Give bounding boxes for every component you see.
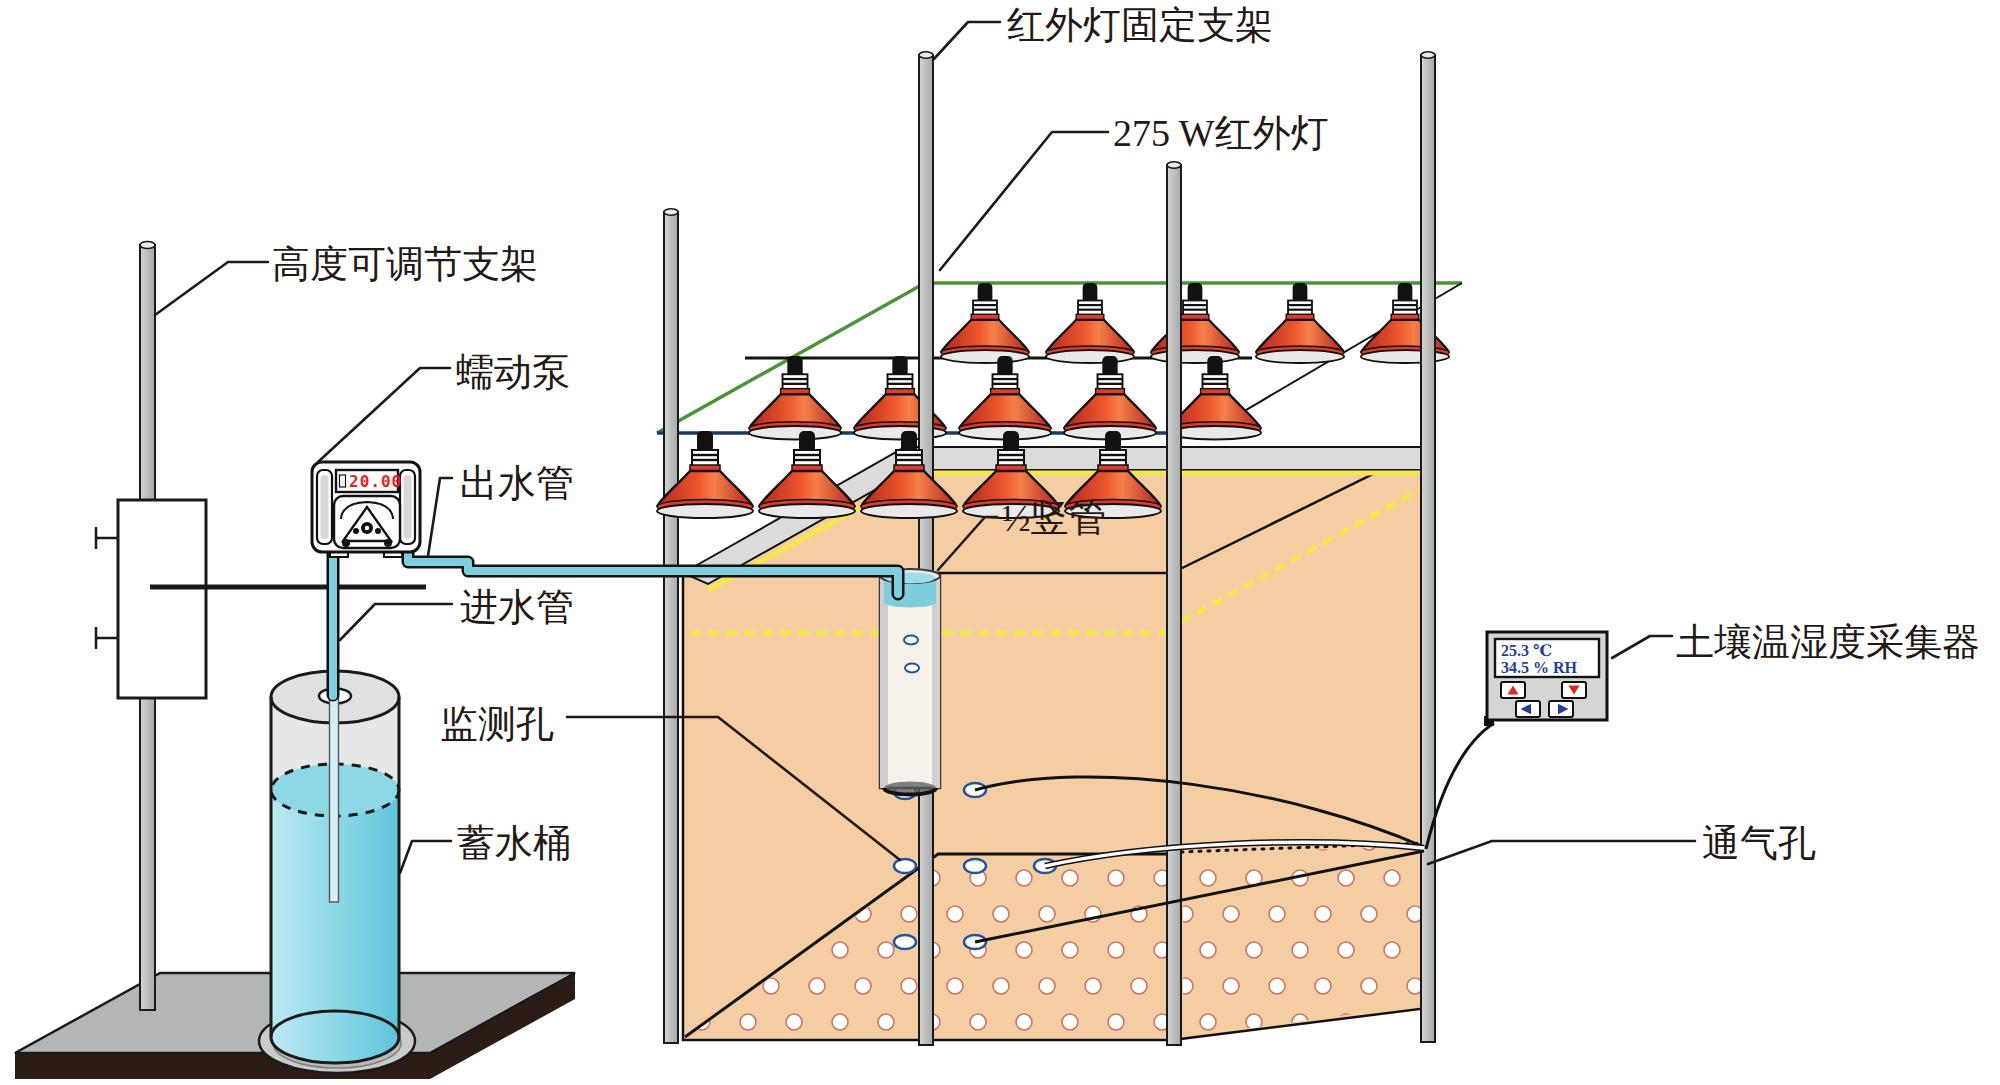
riser-tube-hole [905, 664, 919, 673]
soil-sensor-collector: 25.3 ℃ 34.5 % RH [1484, 632, 1607, 726]
collector-cable [1426, 723, 1494, 849]
collector-humidity: 34.5 % RH [1501, 659, 1578, 676]
collector-display: 25.3 ℃ 34.5 % RH [1495, 639, 1599, 677]
label-riser-pipe: ½竖管 [1002, 497, 1107, 539]
experiment-diagram: 20.00 25.3 ℃ 34.5 % RH [0, 0, 2000, 1085]
pump-display-value: 20.00 [349, 472, 402, 491]
infrared-lamp [959, 356, 1051, 440]
label-water-bucket: 蓄水桶 [457, 822, 571, 864]
box-left-pole [664, 209, 678, 1043]
label-vent-holes: 通气孔 [1702, 822, 1816, 864]
box-right-pole [1421, 52, 1435, 1042]
lamp-fixing-bracket-pole [919, 52, 933, 1045]
infrared-lamp [1169, 356, 1261, 440]
label-infrared-lamp: 275 W红外灯 [1113, 112, 1329, 154]
leader-outlet-pipe [428, 478, 452, 556]
infrared-lamp [749, 356, 841, 440]
infrared-lamp [1151, 283, 1239, 363]
monitoring-hole [894, 859, 916, 873]
diagram-canvas: 20.00 25.3 ℃ 34.5 % RH [0, 0, 2000, 1085]
leader-fixing-bracket [933, 22, 1000, 60]
pump-display: 20.00 [336, 470, 402, 492]
riser-tube [880, 569, 940, 795]
label-inlet-pipe: 进水管 [460, 586, 574, 628]
leader-adjustable-stand [155, 262, 268, 315]
label-soil-sensor: 土壤温湿度采集器 [1676, 621, 1980, 663]
infrared-lamp [941, 283, 1029, 363]
infrared-lamp [759, 431, 855, 518]
leader-infrared-lamp [940, 132, 1108, 270]
infrared-lamp [1064, 356, 1156, 440]
leader-bucket [400, 841, 451, 873]
monitoring-hole [894, 935, 916, 949]
label-outlet-pipe: 出水管 [460, 462, 574, 504]
riser-tube-hole [904, 636, 918, 645]
infrared-lamp [1046, 283, 1134, 363]
infrared-lamp [1256, 283, 1344, 363]
peristaltic-pump: 20.00 [312, 462, 420, 557]
pump-rotor-mechanism [334, 496, 400, 548]
monitoring-hole [964, 859, 986, 873]
leader-inlet-pipe [340, 604, 452, 640]
leader-vent-holes [1428, 841, 1695, 864]
pole-clamp [96, 500, 206, 698]
inlet-tube-inside-bucket [330, 697, 339, 902]
label-peristaltic-pump: 蠕动泵 [456, 351, 570, 393]
leader-soil-sensor [1612, 636, 1672, 658]
infrared-lamp-array-middle [749, 356, 1261, 440]
box-front-pole [1167, 162, 1181, 1045]
collector-temperature: 25.3 ℃ [1501, 642, 1552, 659]
label-fixing-bracket: 红外灯固定支架 [1007, 4, 1273, 46]
infrared-lamp-array-back [941, 283, 1449, 363]
leader-pump [318, 368, 450, 462]
label-monitoring-holes: 监测孔 [440, 703, 554, 745]
label-adjustable-stand: 高度可调节支架 [272, 243, 538, 285]
water-storage-bucket [271, 671, 399, 1063]
